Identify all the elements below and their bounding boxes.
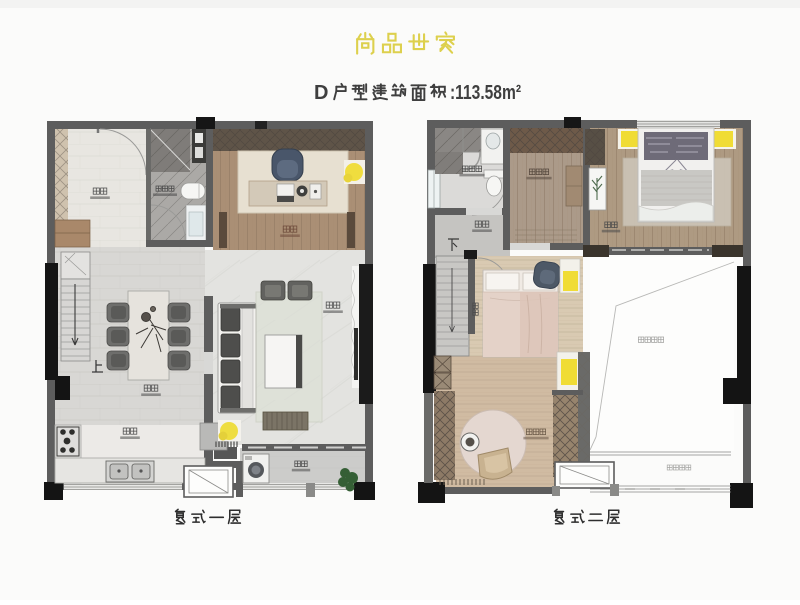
svg-text::113.58m²: :113.58m²: [450, 82, 521, 104]
svg-text:D: D: [314, 82, 328, 104]
